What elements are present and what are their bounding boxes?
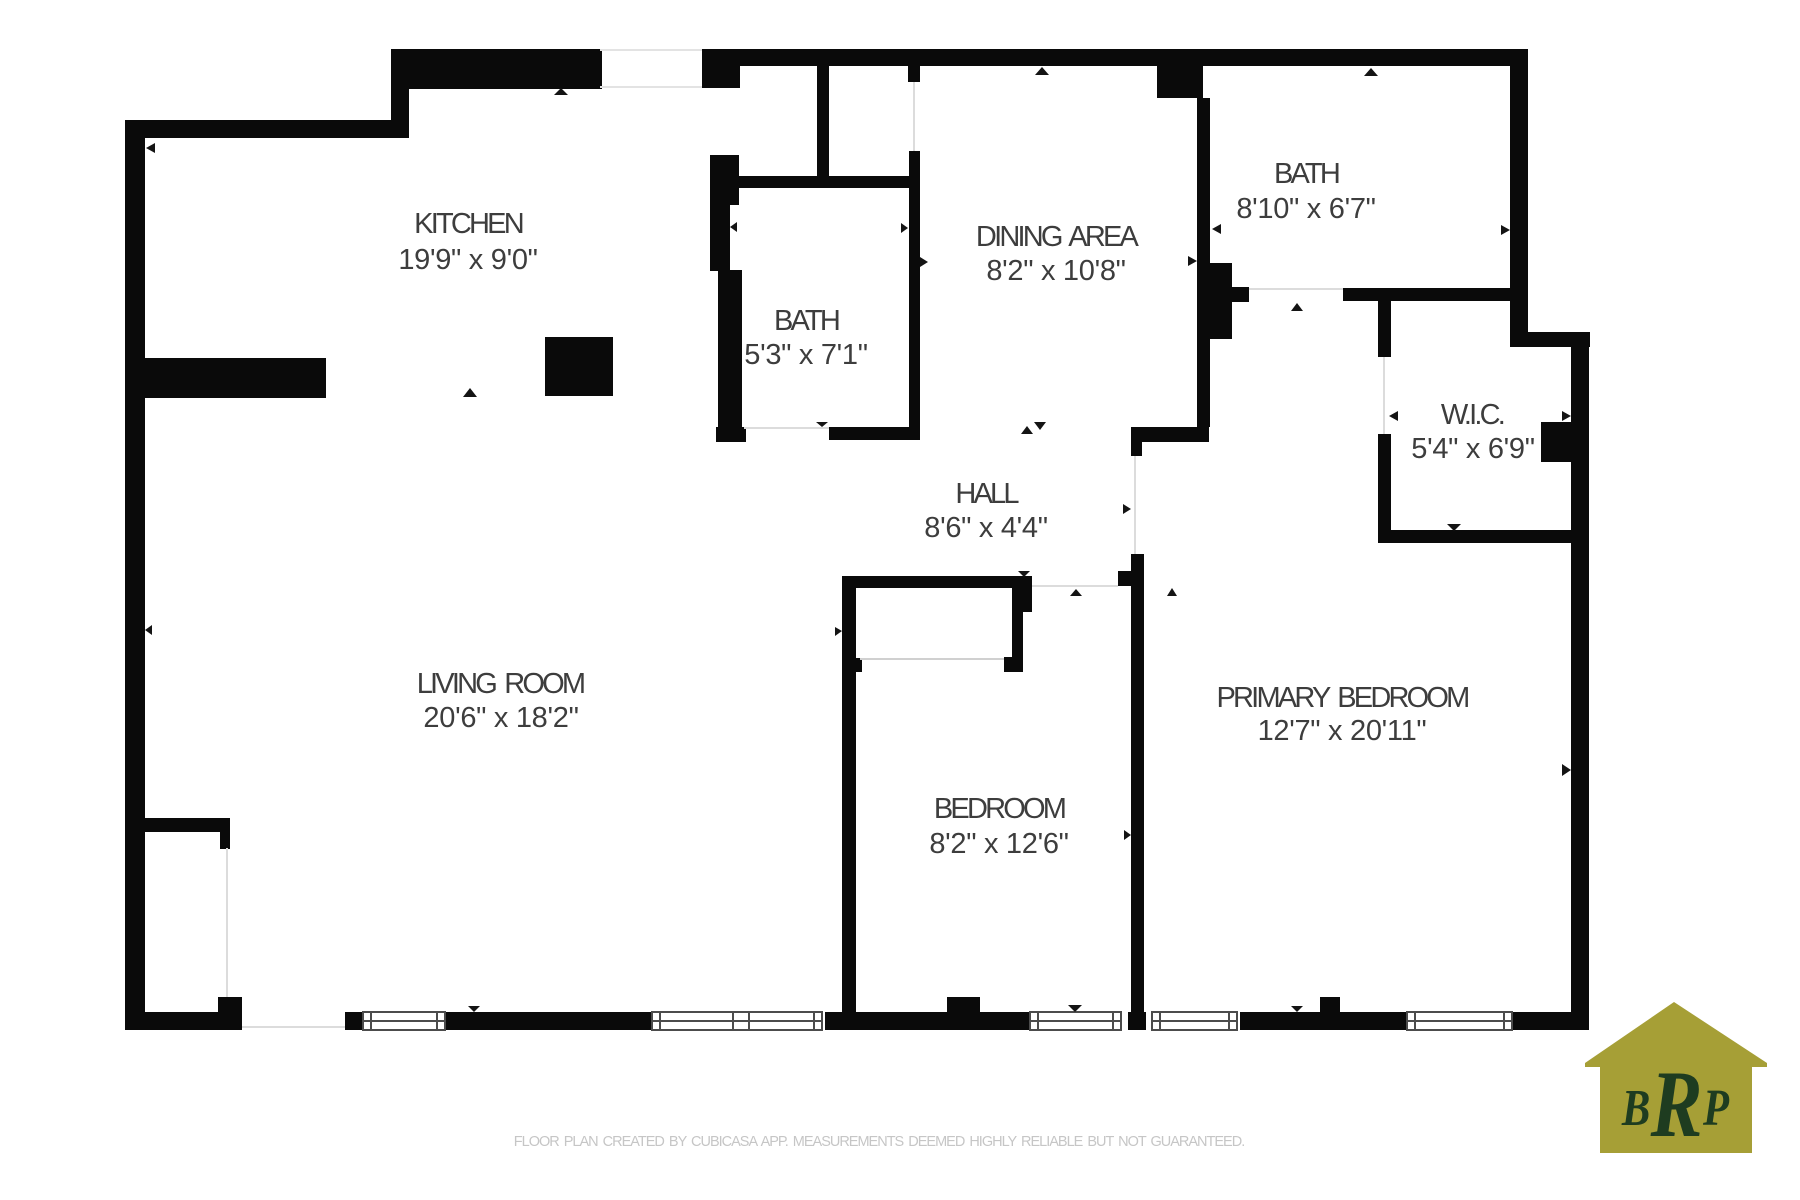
svg-text:PRIMARY BEDROOM: PRIMARY BEDROOM	[1217, 682, 1469, 714]
svg-text:FLOOR PLAN CREATED BY CUBICASA: FLOOR PLAN CREATED BY CUBICASA APP. MEAS…	[514, 1134, 1244, 1150]
svg-text:BEDROOM: BEDROOM	[934, 793, 1065, 825]
svg-text:8'2" x 12'6": 8'2" x 12'6"	[929, 828, 1068, 860]
svg-text:LIVING ROOM: LIVING ROOM	[417, 668, 584, 700]
svg-text:19'9" x 9'0": 19'9" x 9'0"	[398, 244, 537, 276]
svg-text:5'4" x 6'9": 5'4" x 6'9"	[1411, 433, 1535, 465]
svg-text:R: R	[1650, 1052, 1703, 1157]
svg-text:BATH: BATH	[1274, 158, 1339, 190]
svg-text:8'2" x 10'8": 8'2" x 10'8"	[986, 255, 1125, 287]
svg-text:KITCHEN: KITCHEN	[414, 208, 523, 240]
svg-text:P: P	[1702, 1080, 1730, 1137]
svg-text:W.I.C.: W.I.C.	[1441, 399, 1504, 431]
svg-text:8'10" x 6'7": 8'10" x 6'7"	[1236, 193, 1375, 225]
svg-text:8'6" x 4'4": 8'6" x 4'4"	[924, 512, 1048, 544]
svg-text:12'7" x 20'11": 12'7" x 20'11"	[1258, 715, 1427, 747]
svg-text:B: B	[1621, 1080, 1650, 1137]
svg-text:HALL: HALL	[955, 478, 1019, 510]
svg-text:BATH: BATH	[774, 305, 839, 337]
svg-text:DINING AREA: DINING AREA	[976, 221, 1140, 253]
svg-text:20'6" x 18'2": 20'6" x 18'2"	[423, 702, 578, 734]
svg-text:5'3" x 7'1": 5'3" x 7'1"	[744, 339, 868, 371]
